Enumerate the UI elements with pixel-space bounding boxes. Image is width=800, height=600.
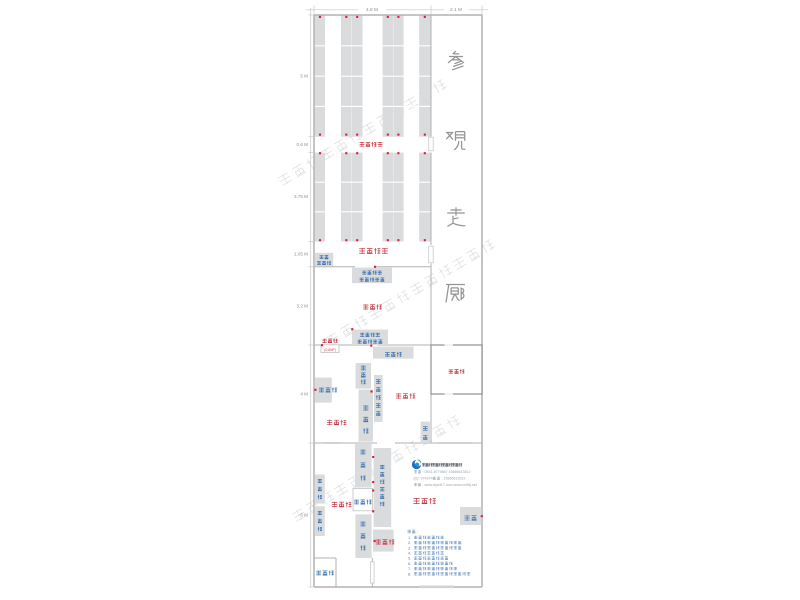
svg-text:6 M: 6 M bbox=[300, 513, 308, 518]
svg-text:QQ: 9743746: QQ: 9743746 bbox=[413, 477, 435, 481]
svg-text:3.75 M: 3.75 M bbox=[294, 194, 308, 199]
svg-text:: www.aipet17.com www.cn98j.n: : www.aipet17.com www.cn98j.net bbox=[423, 483, 477, 487]
svg-text:8.: 8. bbox=[408, 571, 411, 576]
svg-text:2.1 M: 2.1 M bbox=[450, 7, 462, 13]
svg-text:: 15866613512: : 15866613512 bbox=[442, 477, 466, 481]
svg-text::: : bbox=[417, 529, 418, 534]
svg-text:1.05 M: 1.05 M bbox=[294, 252, 308, 257]
svg-text:4.8 M: 4.8 M bbox=[366, 7, 378, 13]
svg-text:5 M: 5 M bbox=[300, 74, 308, 79]
svg-text:(0.6M²): (0.6M²) bbox=[324, 348, 336, 352]
svg-text:: 0531-8779867 15866613512: : 0531-8779867 15866613512 bbox=[423, 470, 471, 474]
svg-text:0.6 M: 0.6 M bbox=[297, 142, 309, 147]
svg-text:3.2 M: 3.2 M bbox=[297, 304, 309, 309]
svg-text:4 M: 4 M bbox=[300, 392, 308, 397]
